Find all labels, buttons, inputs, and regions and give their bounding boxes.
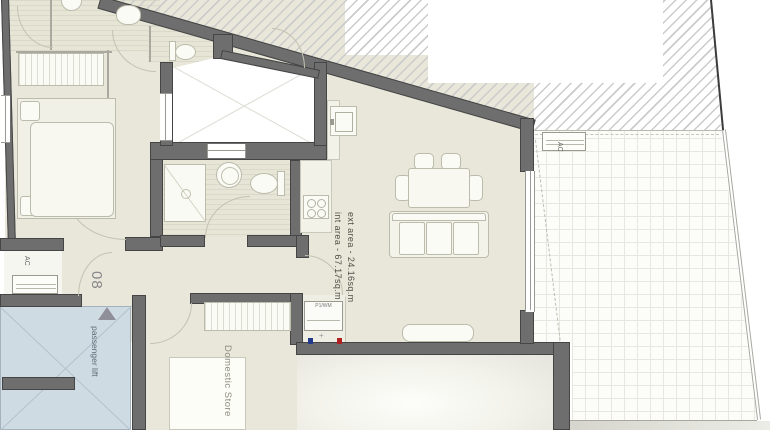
toilet <box>250 173 278 194</box>
sofa <box>389 211 489 258</box>
blur-content <box>297 355 555 430</box>
terrace-top-edge <box>534 130 722 131</box>
ac-unit <box>12 275 58 294</box>
neighbor-property <box>428 0 663 83</box>
wall-living-right-top <box>520 118 534 172</box>
wardrobe <box>18 53 104 86</box>
store-table <box>169 357 246 430</box>
ac-unit-line <box>546 140 584 141</box>
partition-bedroom <box>107 50 109 98</box>
wall-store-right <box>290 293 303 345</box>
domestic-store-label: Domestic Store <box>222 345 233 430</box>
window-frame-line <box>5 96 6 142</box>
wall-bathroom-left <box>150 158 163 237</box>
wall-bathroom-bottom-left <box>160 235 205 247</box>
dining-table <box>408 168 470 208</box>
wall-niche-bottom <box>0 294 82 307</box>
ac-unit-line <box>16 288 56 289</box>
entrance-arrow <box>98 307 116 320</box>
window-bedroom <box>1 95 10 143</box>
blurred-strip <box>556 421 770 430</box>
bed-duvet <box>30 122 114 217</box>
shower <box>164 164 206 222</box>
tv-bench <box>402 324 474 342</box>
window-shaft-bottom <box>207 144 246 158</box>
burner <box>307 209 316 218</box>
int-area-label: int area - 67.17sq.m <box>333 212 343 352</box>
bed-pillow <box>20 101 40 121</box>
hob <box>303 195 329 219</box>
passenger-lift-label: passenger lift <box>90 326 100 426</box>
lift-shaft <box>0 306 131 430</box>
wall-right-lower <box>553 342 570 430</box>
ext-area-label: ext area - 24.16sq.m <box>346 212 356 352</box>
sofa-cushion <box>453 222 479 255</box>
wall-bathroom-bottom-right <box>247 235 302 247</box>
store-shelf <box>204 302 291 331</box>
wall-lift-store <box>132 295 146 430</box>
toilet-cistern <box>277 171 285 196</box>
window-shaft-left <box>160 93 172 141</box>
window-frame-line <box>165 94 166 140</box>
sink-bowl <box>335 112 353 132</box>
window-frame-line <box>208 150 245 151</box>
window-frame-line <box>530 171 531 310</box>
wall-hall-stub <box>125 237 163 251</box>
wall-living-right-bottom <box>520 310 534 344</box>
apartment-number-label: 08 <box>88 271 105 305</box>
burner <box>307 199 316 208</box>
lift-diagonal <box>1 305 132 429</box>
sink-tap <box>330 119 334 125</box>
ac-label: AC <box>556 142 563 160</box>
burner <box>317 209 326 218</box>
washbasin <box>216 162 242 188</box>
ac-label: AC <box>23 256 30 274</box>
wall-niche-top <box>0 238 64 251</box>
water-plus-marker: + <box>319 331 324 340</box>
toilet <box>116 5 141 25</box>
cold-water-point <box>308 338 313 344</box>
burner <box>317 199 326 208</box>
shower-drain <box>181 189 191 199</box>
washbasin-bowl <box>221 167 239 185</box>
floor-plan: passenger lift <box>0 0 770 430</box>
ac-unit <box>542 132 586 151</box>
sofa-back <box>392 213 486 221</box>
ac-unit-line <box>16 284 56 285</box>
blurred-area <box>297 355 555 430</box>
kitchen-sink <box>330 106 357 136</box>
sofa-cushion <box>399 222 425 255</box>
window-terrace-slider <box>525 171 535 312</box>
wall-lift-inner <box>2 377 75 390</box>
sofa-cushion <box>426 222 452 255</box>
ac-unit-line <box>546 144 584 145</box>
toilet <box>175 44 196 60</box>
